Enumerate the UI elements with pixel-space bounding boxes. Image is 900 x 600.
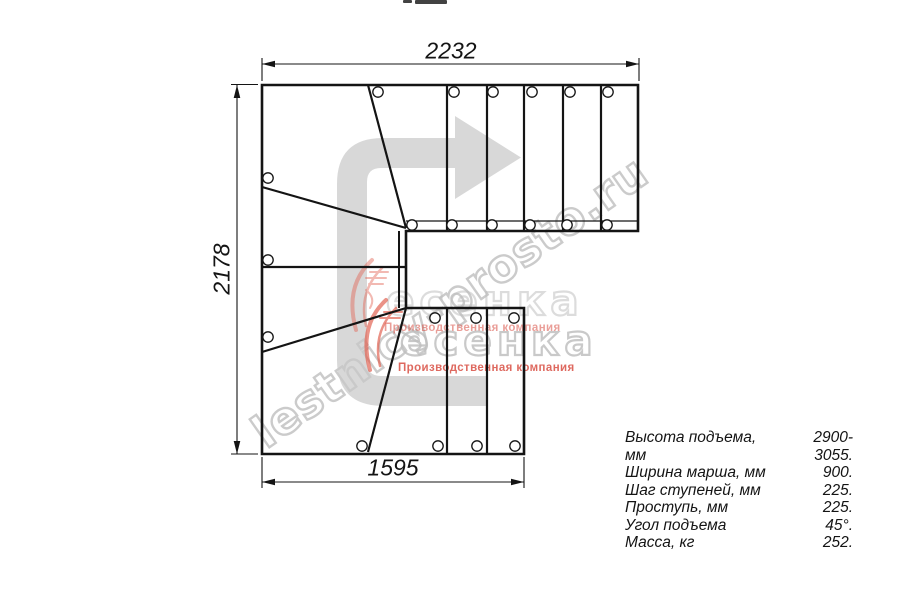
dimension-top-value: 2232 [425,38,476,65]
spec-value: 225. [823,482,853,500]
spec-label: Угол подъема [625,517,726,535]
spec-label: Масса, кг [625,534,694,552]
lower-flight-step-lines [447,308,487,454]
spec-table: Высота подъема, мм 2900-3055. Ширина мар… [625,429,853,552]
spec-value: 225. [823,499,853,517]
winder-step-lines [262,85,406,452]
spec-label: Ширина марша, мм [625,464,766,482]
spec-row: Шаг ступеней, мм 225. [625,482,853,500]
dimension-arrowheads [234,61,639,485]
spec-value: 45°. [825,517,853,535]
spec-label: Проступь, мм [625,499,728,517]
stair-outline [262,85,638,454]
spec-value: 252. [823,534,853,552]
spec-value: 2900-3055. [777,429,853,464]
upper-flight-step-lines [447,85,601,231]
spec-row: Угол подъема 45°. [625,517,853,535]
spec-label: Шаг ступеней, мм [625,482,761,500]
spec-row: Высота подъема, мм 2900-3055. [625,429,853,464]
dimension-left-value: 2178 [209,243,236,294]
staircase-drawing-canvas: lestnicy-prosto.ru есенка Производственн… [0,0,900,600]
spec-row: Масса, кг 252. [625,534,853,552]
fastener-holes [263,87,613,451]
spec-row: Проступь, мм 225. [625,499,853,517]
spec-row: Ширина марша, мм 900. [625,464,853,482]
spec-label: Высота подъема, мм [625,429,777,464]
cropped-top-artifact [403,0,447,4]
dimension-bottom-value: 1595 [367,455,418,482]
spec-value: 900. [823,464,853,482]
